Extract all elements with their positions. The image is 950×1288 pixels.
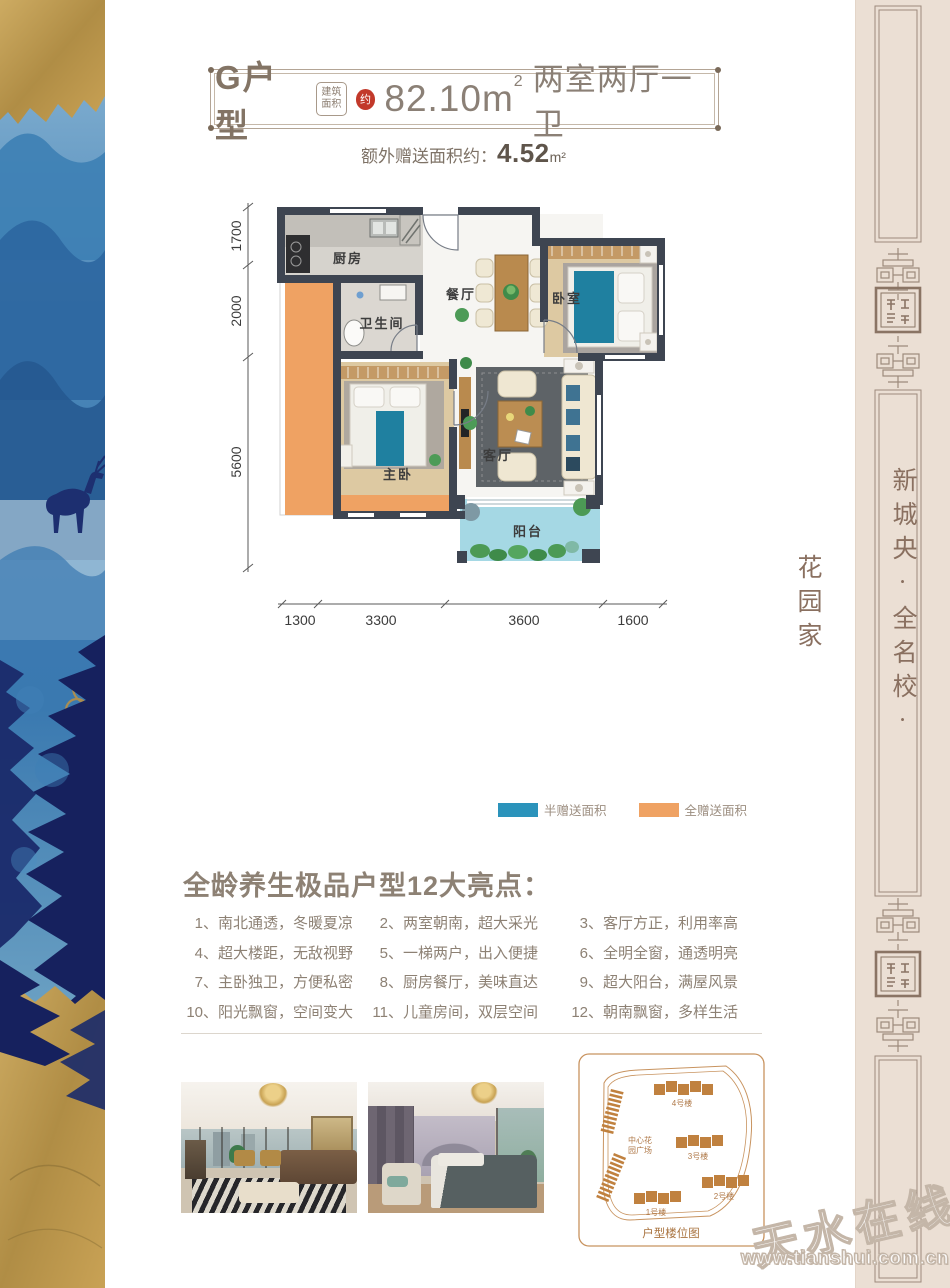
highlight-item: 6、全明全窗，通透明亮	[569, 938, 764, 968]
highlight-item: 1、南北通透，冬暖夏凉	[184, 908, 369, 938]
title-frame: G户型 建筑 面积 约 82.10m2 两室两厅一卫	[210, 69, 719, 129]
highlights-grid: 1、南北通透，冬暖夏凉 2、两室朝南，超大采光 3、客厅方正，利用率高 4、超大…	[184, 908, 769, 1026]
highlight-item: 8、厨房餐厅，美味直达	[369, 967, 569, 997]
highlight-item: 9、超大阳台，满屋风景	[569, 967, 764, 997]
blue-landscape-painting	[0, 0, 105, 1288]
building-4-label: 4号楼	[672, 1098, 692, 1108]
half-gift-label: 半赠送面积	[544, 800, 607, 819]
watermark-url: www.tianshui.com.cn	[741, 1247, 949, 1270]
highlight-item: 5、一梯两户，出入便捷	[369, 938, 569, 968]
floorplan: 厨房 卫生间 餐厅 卧室 主卧 客厅 阳台 1700 2000 5600 130…	[230, 195, 700, 635]
svg-text:园广场: 园广场	[628, 1145, 652, 1155]
siteplan-caption: 户型楼位图	[642, 1226, 700, 1240]
highlights-title: 全龄养生极品户型12大亮点：	[183, 864, 551, 903]
dim-1700: 1700	[230, 220, 244, 251]
full-gift-strip	[285, 278, 333, 515]
highlight-item: 4、超大楼距，无敌视野	[184, 938, 369, 968]
approx-badge: 约	[356, 89, 376, 110]
stove	[286, 235, 310, 273]
dim-3600: 3600	[508, 612, 539, 628]
building-2-label: 2号楼	[714, 1191, 734, 1201]
kitchen-label: 厨房	[333, 251, 363, 266]
highlight-item: 12、朝南飘窗，多样生活	[569, 997, 764, 1027]
living-label: 客厅	[483, 448, 513, 463]
bonus-area-line: 额外赠送面积约：4.52m²	[210, 138, 717, 169]
dining-label: 餐厅	[445, 287, 476, 302]
flyer-page: 新城央·全名校·花园家 G户型 建筑 面积 约 82.10m2 两室两厅一卫 额…	[0, 0, 950, 1288]
highlight-item: 3、客厅方正，利用率高	[569, 908, 764, 938]
building-1-label: 1号楼	[646, 1207, 666, 1217]
dim-5600: 5600	[230, 446, 244, 477]
half-gift-swatch	[498, 803, 538, 817]
chandelier-icon	[470, 1082, 498, 1104]
highlight-item: 2、两室朝南，超大采光	[369, 908, 569, 938]
balcony-label: 阳台	[513, 524, 543, 539]
center-plaza-label: 中心花	[628, 1135, 652, 1145]
highlight-item: 10、阳光飘窗，空间变大	[184, 997, 369, 1027]
bay-window-gift	[341, 495, 457, 513]
unit-type-title: G户型	[215, 51, 307, 147]
photo-bedroom	[368, 1082, 544, 1213]
corner-dot	[715, 125, 721, 131]
bath-sink	[380, 285, 406, 300]
photo-living-room	[181, 1082, 357, 1213]
full-gift-label: 全赠送面积	[685, 800, 748, 819]
layout-description: 两室两厅一卫	[533, 54, 714, 144]
full-gift-swatch	[639, 803, 679, 817]
dim-2000: 2000	[230, 295, 244, 326]
area-value: 82.10m2	[384, 78, 523, 120]
bedroom-label: 卧室	[552, 291, 582, 306]
highlight-item: 7、主卧独卫，方便私密	[184, 967, 369, 997]
knot-ornament	[877, 248, 919, 300]
corner-dot	[208, 125, 214, 131]
highlight-item: 11、儿童房间，双层空间	[369, 997, 569, 1027]
gift-area-legend: 半赠送面积 全赠送面积	[498, 800, 747, 819]
corner-dot	[715, 67, 721, 73]
dim-1600: 1600	[617, 612, 648, 628]
section-divider	[181, 1033, 762, 1034]
dim-3300: 3300	[365, 612, 396, 628]
vertical-slogan: 新城央·全名校·花园家	[855, 455, 950, 755]
site-plan: 4号楼 3号楼 2号楼 1号楼 中心花 园广场 户型楼位图	[578, 1053, 765, 1247]
bathroom-label: 卫生间	[359, 316, 404, 331]
seal-stamp-icon	[876, 952, 920, 996]
building-3-label: 3号楼	[688, 1151, 708, 1161]
building-area-badge: 建筑 面积	[316, 82, 346, 116]
master-bedroom-label: 主卧	[383, 467, 413, 482]
dim-1300: 1300	[284, 612, 315, 628]
